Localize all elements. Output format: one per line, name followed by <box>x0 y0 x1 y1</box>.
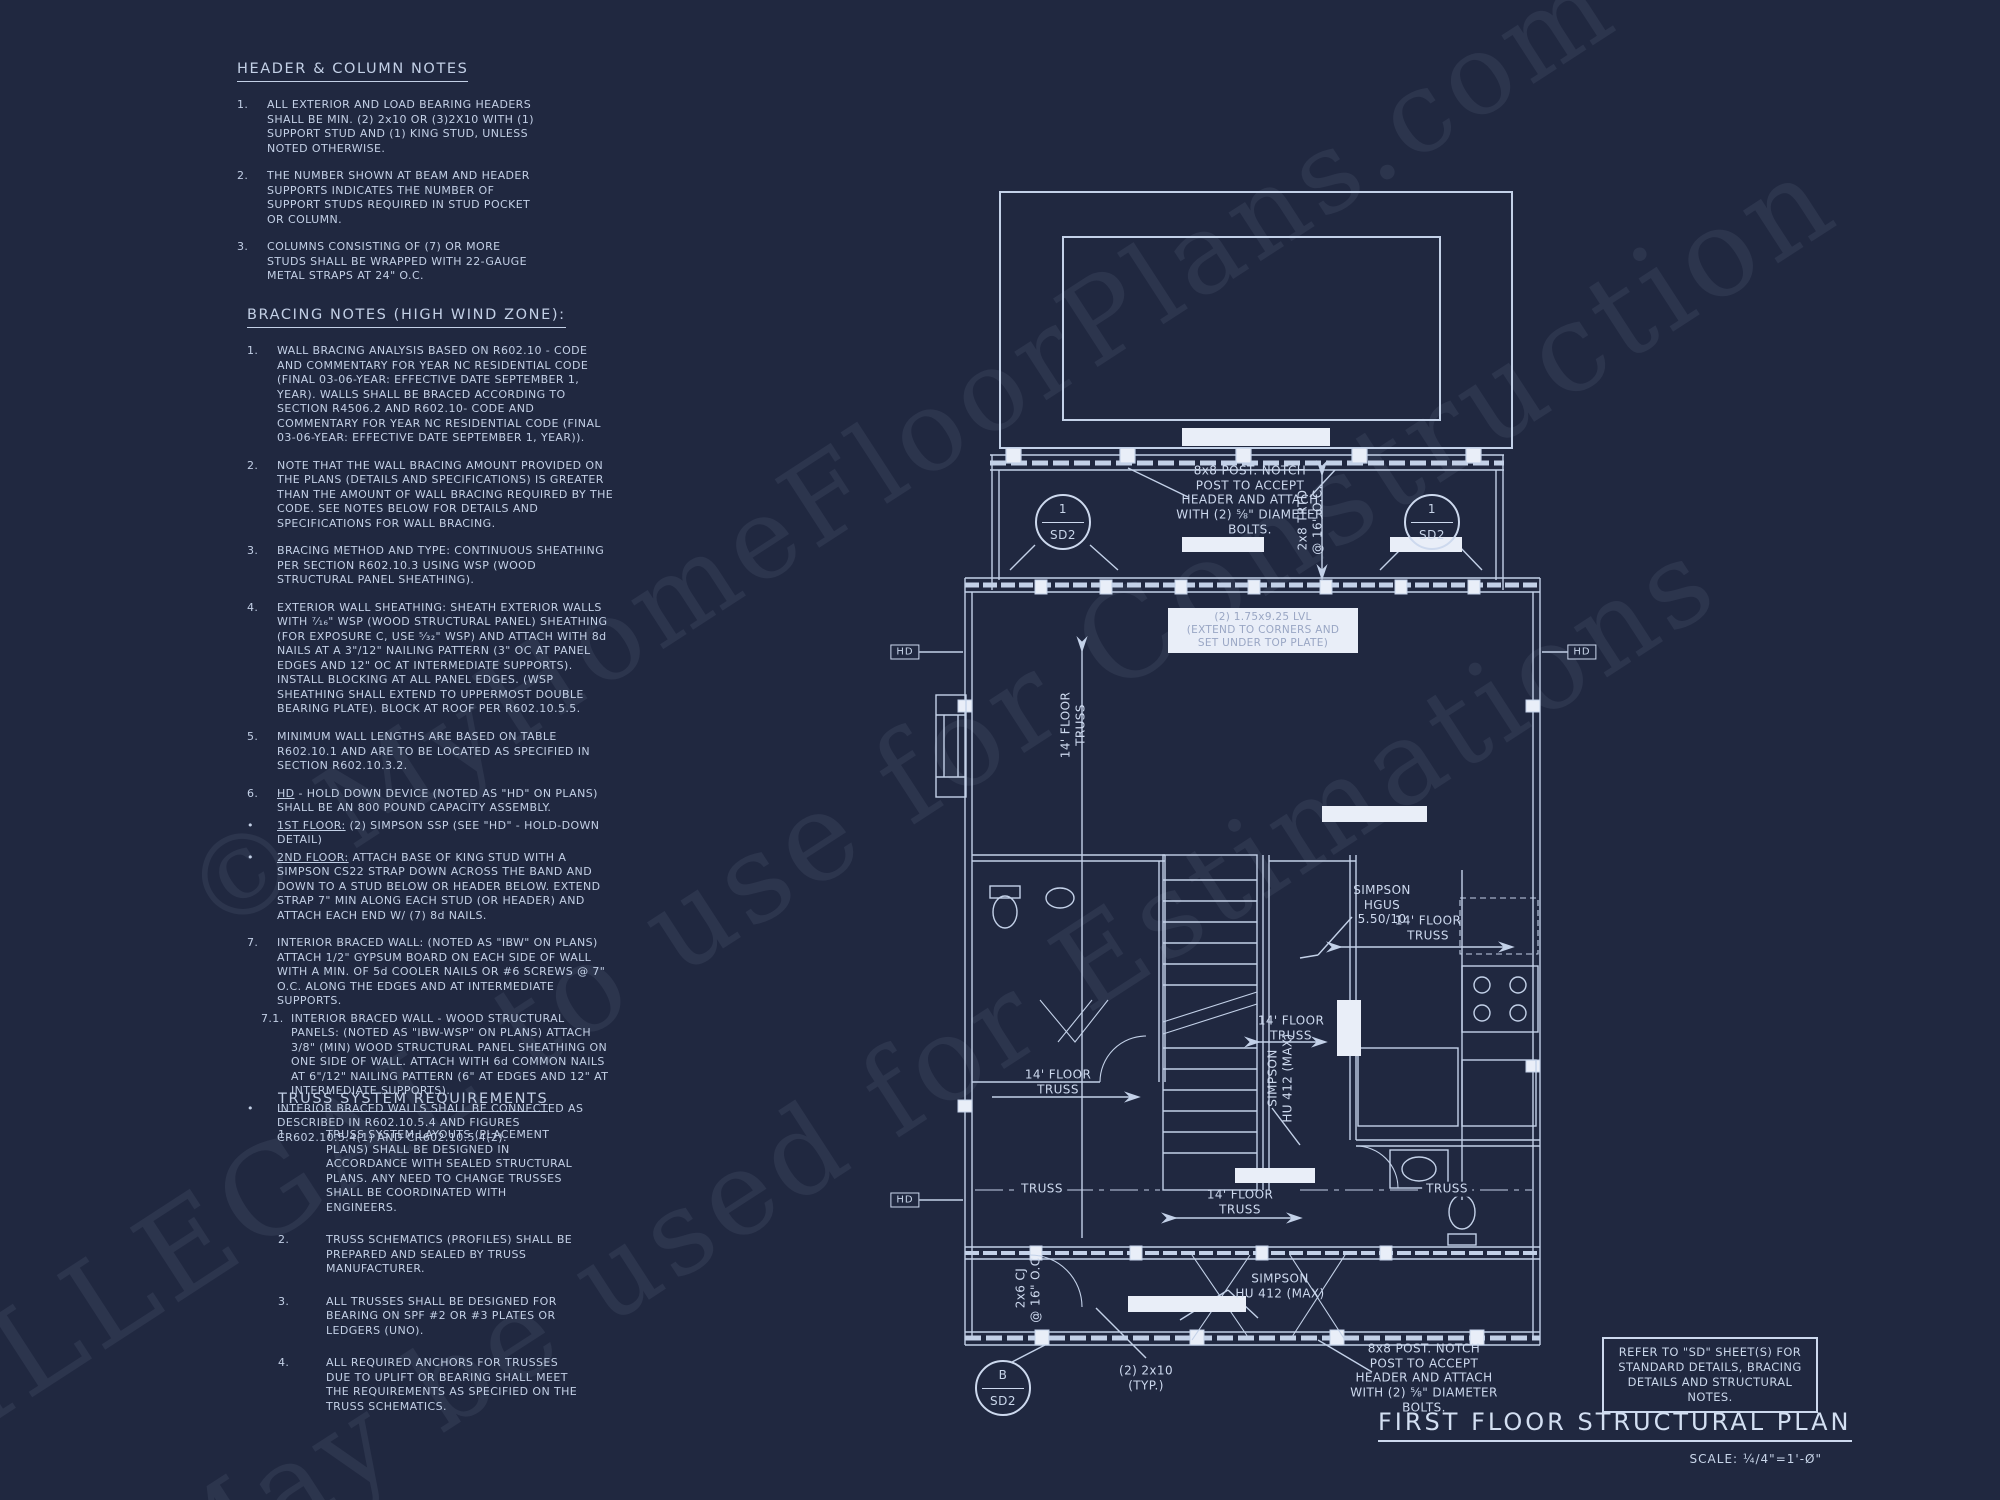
sheet-title: FIRST FLOOR STRUCTURAL PLAN <box>1378 1408 1852 1442</box>
detail-callout-sd2: 1SD2 <box>1035 494 1091 550</box>
floor-truss-label: 14' FLOOR TRUSS <box>1025 1067 1091 1096</box>
highlight-label-box <box>1128 1296 1246 1312</box>
floor-truss-label: 14' FLOOR TRUSS <box>1058 692 1087 758</box>
detail-callout-sd2: 1SD2 <box>1404 494 1460 550</box>
deck-joist-label: 2x8 TRTD @ 16" O.C. <box>1295 485 1324 554</box>
highlight-label-box <box>1322 806 1427 822</box>
post-note-bottom: 8x8 POST. NOTCH POST TO ACCEPT HEADER AN… <box>1350 1341 1498 1414</box>
highlight-label-box <box>1182 537 1264 552</box>
hold-down-marker: HD <box>1567 645 1596 660</box>
blueprint-sheet: © MyHomeFloorPlans.com ILLEGAL to use fo… <box>0 0 2000 1500</box>
lvl-note-box: (2) 1.75x9.25 LVL (EXTEND TO CORNERS AND… <box>1168 608 1358 653</box>
porch-joist-label: 2x6 CJ @ 16" O.C. <box>1013 1253 1042 1322</box>
truss-label: TRUSS <box>1422 1182 1472 1197</box>
simpson-hu-label: SIMPSON HU 412 (MAX) <box>1265 1033 1294 1122</box>
highlight-label-box <box>1182 428 1330 446</box>
hold-down-marker: HD <box>890 645 919 660</box>
floor-truss-label: 14' FLOOR TRUSS <box>1207 1187 1273 1216</box>
highlight-label-box <box>1337 1000 1361 1056</box>
hold-down-marker: HD <box>890 1193 919 1208</box>
floor-truss-label: 14' FLOOR TRUSS <box>1395 913 1461 942</box>
floor-plan-drawing <box>0 0 2000 1500</box>
scale-note: SCALE: ¼/4"=1'-Ø" <box>1560 1452 1822 1466</box>
highlight-label-box <box>1235 1168 1315 1183</box>
truss-label: TRUSS <box>1017 1182 1067 1197</box>
typ-2x10-label: (2) 2x10 (TYP.) <box>1119 1363 1173 1392</box>
detail-callout-b-sd2: BSD2 <box>975 1360 1031 1416</box>
refer-note-box: REFER TO "SD" SHEET(S) FOR STANDARD DETA… <box>1602 1337 1818 1413</box>
simpson-hu-label: SIMPSON HU 412 (MAX) <box>1235 1271 1324 1300</box>
